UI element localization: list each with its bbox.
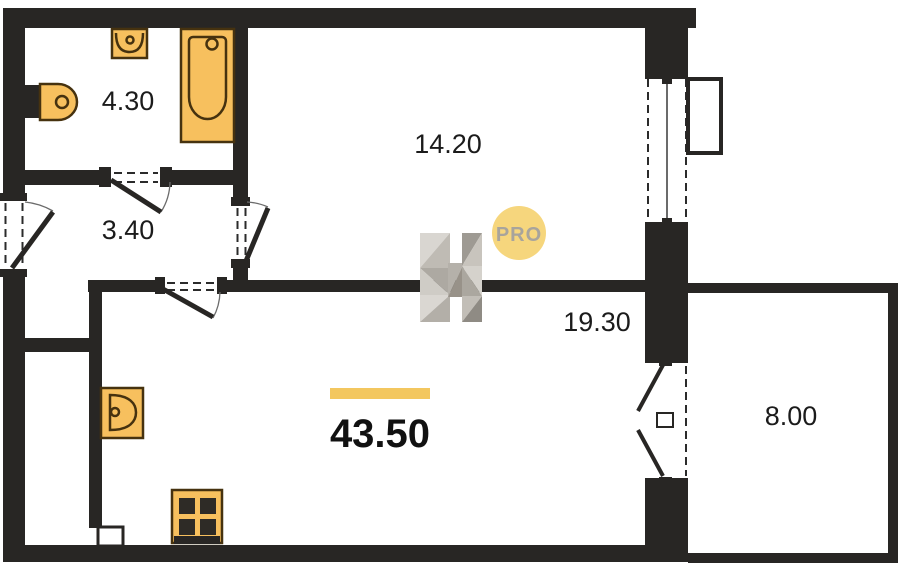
duct-box (98, 527, 123, 546)
kitchen-sink (101, 388, 143, 438)
balcony-area-label: 8.00 (765, 401, 818, 431)
living-room-door (155, 277, 227, 318)
floor-plan-canvas: PRO 4.30 3.40 14.20 19.30 8.00 43.50 (0, 0, 900, 565)
living-area-label: 19.30 (563, 307, 631, 337)
floor-plan: PRO 4.30 3.40 14.20 19.30 8.00 43.50 (0, 0, 900, 565)
balcony-door (638, 359, 686, 484)
logo-pro-badge: PRO (492, 206, 546, 260)
entrance-door (0, 193, 53, 277)
bathroom-door (99, 167, 172, 212)
exterior-pilaster (688, 79, 721, 153)
bathroom-sink (112, 29, 147, 58)
bedroom-door (231, 197, 268, 268)
bathroom-area-label: 4.30 (102, 86, 155, 116)
badge-text: PRO (496, 224, 542, 246)
toilet (25, 84, 77, 120)
total-area-accent-bar (330, 388, 430, 399)
window (648, 76, 686, 226)
hallway-area-label: 3.40 (102, 215, 155, 245)
logo: PRO (420, 206, 546, 322)
stove (172, 490, 222, 544)
total-area-label: 43.50 (330, 412, 430, 456)
bathtub (181, 29, 234, 142)
balcony-door-handle (657, 413, 673, 427)
total-area: 43.50 (330, 388, 430, 456)
logo-monogram-h (420, 233, 482, 322)
bedroom-area-label: 14.20 (414, 129, 482, 159)
